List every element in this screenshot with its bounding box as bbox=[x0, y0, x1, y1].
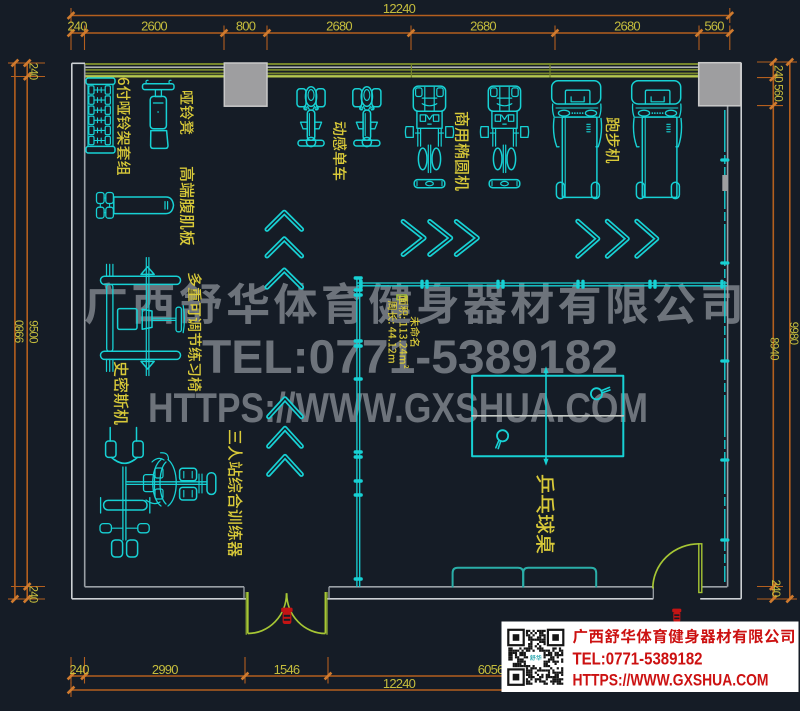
svg-text:9980: 9980 bbox=[787, 322, 799, 345]
svg-text:240: 240 bbox=[27, 63, 39, 80]
svg-text:240 560: 240 560 bbox=[772, 65, 784, 101]
svg-text:240: 240 bbox=[769, 580, 781, 597]
svg-text:800: 800 bbox=[236, 19, 256, 34]
svg-text:8940: 8940 bbox=[768, 337, 780, 360]
svg-text:560: 560 bbox=[704, 19, 724, 34]
svg-text:2600: 2600 bbox=[141, 19, 167, 34]
svg-text:240: 240 bbox=[67, 19, 87, 34]
svg-text:240: 240 bbox=[27, 586, 39, 603]
svg-text:TEL:0771-5389182: TEL:0771-5389182 bbox=[573, 649, 703, 669]
svg-text:9500: 9500 bbox=[27, 320, 39, 343]
svg-text:1546: 1546 bbox=[274, 662, 300, 677]
svg-text:HTTPS://WWW.GXSHUA.COM: HTTPS://WWW.GXSHUA.COM bbox=[573, 672, 769, 690]
svg-text:12240: 12240 bbox=[383, 1, 416, 16]
svg-text:6056: 6056 bbox=[478, 662, 504, 677]
svg-text:12240: 12240 bbox=[383, 676, 416, 691]
svg-text:240: 240 bbox=[69, 662, 89, 677]
svg-text:2990: 2990 bbox=[152, 662, 178, 677]
svg-text:2680: 2680 bbox=[326, 19, 352, 34]
svg-text:9980: 9980 bbox=[15, 320, 27, 343]
svg-text:2680: 2680 bbox=[470, 19, 496, 34]
svg-text:HTTPS://WWW.GXSHUA.COM: HTTPS://WWW.GXSHUA.COM bbox=[148, 384, 648, 431]
svg-text:2680: 2680 bbox=[614, 19, 640, 34]
